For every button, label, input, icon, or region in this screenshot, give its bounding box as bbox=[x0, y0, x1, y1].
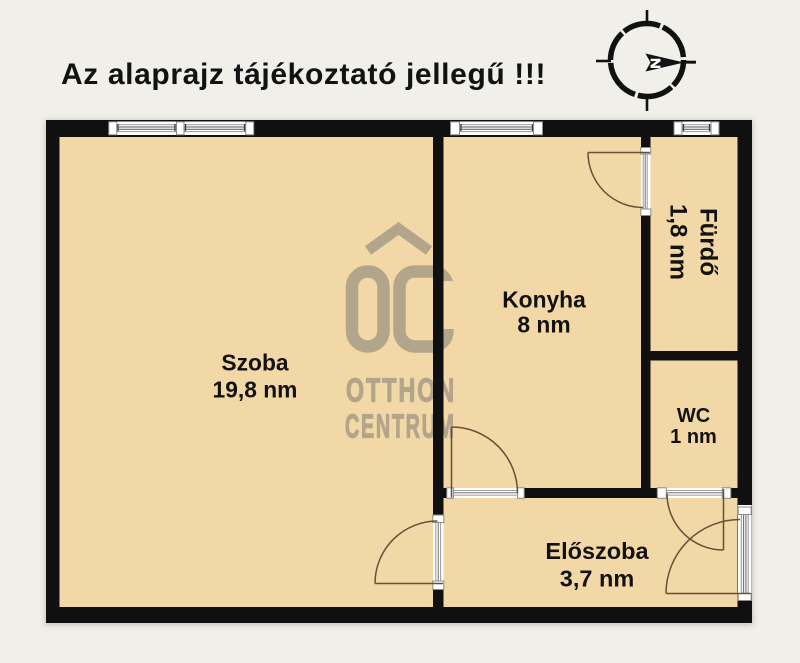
svg-text:Fürdő: Fürdő bbox=[695, 208, 722, 276]
svg-text:Az alaprajz tájékoztató jelleg: Az alaprajz tájékoztató jellegű !!! bbox=[61, 58, 546, 91]
svg-text:19,8 nm: 19,8 nm bbox=[213, 377, 298, 403]
svg-text:8 nm: 8 nm bbox=[517, 312, 570, 338]
svg-text:1,8 nm: 1,8 nm bbox=[665, 204, 692, 280]
svg-text:1 nm: 1 nm bbox=[670, 426, 717, 448]
svg-text:3,7 nm: 3,7 nm bbox=[560, 565, 634, 591]
svg-text:Konyha: Konyha bbox=[502, 287, 586, 313]
svg-text:Előszoba: Előszoba bbox=[545, 538, 649, 564]
svg-text:WC: WC bbox=[677, 405, 710, 427]
svg-text:Szoba: Szoba bbox=[221, 350, 288, 376]
